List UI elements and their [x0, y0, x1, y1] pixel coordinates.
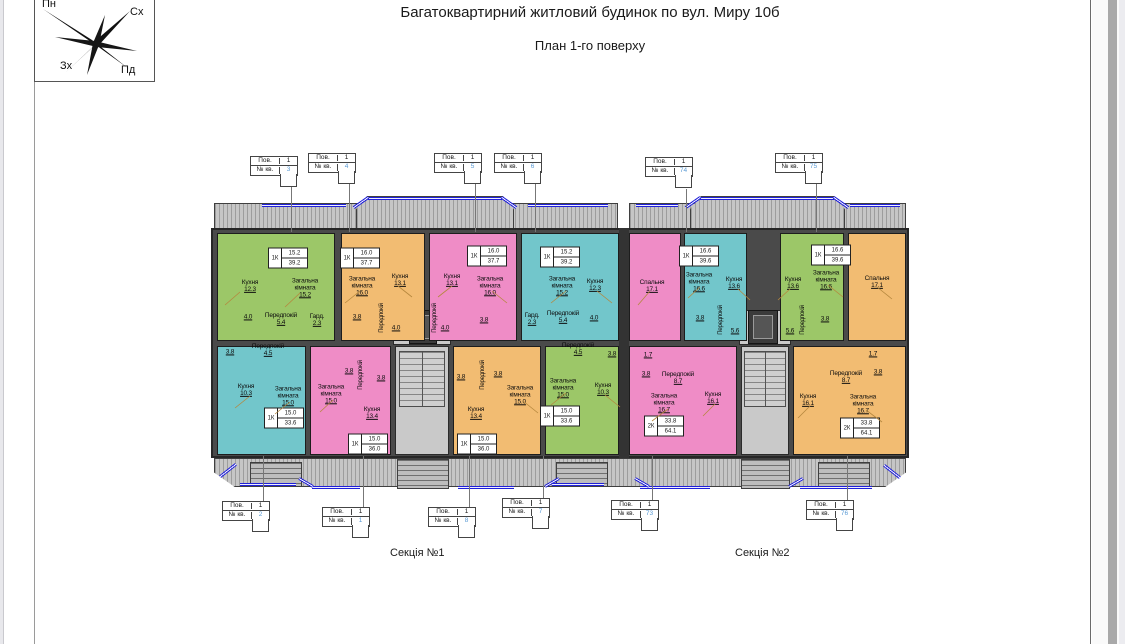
room-label: Кухня16.1 [800, 393, 816, 407]
compass-west-label: Зх [60, 60, 73, 72]
tag-connector [291, 186, 292, 232]
apartment-5-type-box: 1К16.037.7 [467, 246, 507, 267]
tag-connector [686, 189, 687, 232]
room-label: Передпокій [432, 303, 438, 333]
apartment-tag-74: Пов.1 № кв.74 [645, 157, 693, 177]
room-label: 1.7 [644, 351, 652, 358]
apartment-7-type-box: 1К15.033.6 [540, 406, 580, 427]
tag-connector [475, 183, 476, 232]
room-label: Передпокій4.5 [562, 342, 594, 356]
tag-connector [349, 183, 350, 232]
room-label: Передпокій8.7 [830, 370, 862, 384]
room-label: Кухня13.1 [444, 273, 460, 287]
room-label: 3.8 [457, 373, 465, 380]
apartment-tag-1: Пов.1 № кв.1 [322, 507, 370, 527]
room-label: Загальна кімната16.0 [349, 275, 375, 296]
apartment-tag-75: Пов.1 № кв.75 [775, 153, 823, 173]
room-label: Загальна кімната16.7 [850, 393, 876, 414]
window-line [636, 204, 678, 207]
room-label: Передпокій4.5 [252, 343, 284, 357]
room-label: Кухня16.1 [705, 391, 721, 405]
compass-north-label: Пн [42, 0, 56, 10]
floor-plan-sheet: Багатоквартирний житловий будинок по вул… [0, 0, 1125, 644]
room-label: Кухня13.6 [785, 276, 801, 290]
room-label: Загальна кімната16.0 [477, 275, 503, 296]
window-line [850, 204, 900, 207]
room-label: Кухня13.4 [468, 406, 484, 420]
top-bay-section1 [356, 196, 514, 229]
apartment-74-type-box: 1К16.639.6 [679, 246, 719, 267]
room-label: 3.8 [696, 314, 704, 321]
section-party-wall [619, 228, 629, 458]
apartment-7-region [545, 346, 619, 455]
window-line [800, 486, 872, 489]
apartment-6-type-box: 1К15.239.2 [540, 247, 580, 268]
room-label: 5.6 [731, 327, 739, 334]
apartment-tag-4: Пов.1 № кв.4 [308, 153, 356, 173]
sheet-border-right [1090, 0, 1091, 644]
room-label: Передпокій5.4 [547, 310, 579, 324]
room-label: 3.8 [226, 348, 234, 355]
room-label: Передпокій [358, 360, 364, 390]
room-label: 4.0 [392, 324, 400, 331]
room-label: Передпокій [480, 360, 486, 390]
room-label: Кухня12.3 [587, 278, 603, 292]
room-label: Загальна кімната15.0 [507, 384, 533, 405]
room-label: Передпокій [800, 305, 806, 335]
room-label: Загальна кімната15.2 [549, 275, 575, 296]
room-label: 3.8 [494, 370, 502, 377]
apartment-73-type-box: 2К33.864.1 [644, 416, 684, 437]
room-label: 4.0 [244, 313, 252, 320]
apartment-tag-5: Пов.1 № кв.5 [434, 153, 482, 173]
room-label: Передпокій5.4 [265, 312, 297, 326]
apartment-2-type-box: 1К15.033.6 [264, 408, 304, 429]
room-label: Кухня12.3 [242, 279, 258, 293]
window-line [700, 197, 834, 200]
room-label: Загальна кімната15.0 [275, 385, 301, 406]
entrance-steps [397, 459, 449, 489]
window-line [640, 486, 710, 489]
room-label: 4.0 [441, 324, 449, 331]
window-line [528, 204, 608, 207]
elevator-section2 [748, 310, 778, 344]
window-line [458, 486, 514, 489]
entrance-steps [741, 459, 790, 489]
apartment-tag-7: Пов.1 № кв.7 [502, 498, 550, 518]
room-label: 3.8 [874, 368, 882, 375]
apartment-tag-76: Пов.1 № кв.76 [806, 500, 854, 520]
page-right-edge [1119, 0, 1125, 644]
section2-label: Секція №2 [735, 547, 790, 559]
room-label: Гард.2.3 [525, 312, 540, 326]
staircase-section1-icon [399, 351, 445, 407]
compass-south-label: Пд [121, 64, 136, 76]
room-label: Кухня10.3 [595, 382, 611, 396]
room-label: Спальня17.1 [865, 275, 890, 289]
window-line [552, 483, 604, 486]
compass-rose: Пн Сх Зх Пд [34, 0, 155, 82]
section1-label: Секція №1 [390, 547, 445, 559]
tag-connector [816, 184, 817, 232]
room-label: 4.0 [590, 314, 598, 321]
page-title: Багатоквартирний житловий будинок по вул… [90, 4, 1090, 21]
room-label: Загальна кімната15.0 [318, 383, 344, 404]
room-label: Кухня13.1 [392, 273, 408, 287]
apartment-4-type-box: 1К16.037.7 [340, 248, 380, 269]
apartment-1-type-box: 1К15.036.0 [348, 434, 388, 455]
room-label: 3.8 [377, 374, 385, 381]
top-bay-section2 [690, 196, 845, 229]
sheet-border-left [34, 0, 35, 644]
room-label: Передпокій8.7 [662, 371, 694, 385]
window-line [262, 204, 346, 207]
room-label: 3.8 [821, 315, 829, 322]
page-subtitle: План 1-го поверху [90, 38, 1090, 53]
room-label: Загальна кімната16.6 [686, 271, 712, 292]
entrance-steps [818, 462, 870, 487]
room-label: 1.7 [869, 350, 877, 357]
tag-connector [535, 183, 536, 232]
compass-star-icon: Пн Сх Зх Пд [35, 0, 156, 83]
room-label: Передпокій [718, 305, 724, 335]
staircase-section2-icon [744, 351, 786, 407]
apartment-tag-8: Пов.1 № кв.8 [428, 507, 476, 527]
apartment-8-type-box: 1К15.036.0 [457, 434, 497, 455]
room-label: Загальна кімната16.7 [651, 392, 677, 413]
window-line [368, 197, 502, 200]
room-label: 3.8 [608, 350, 616, 357]
room-label: Спальня17.1 [640, 279, 665, 293]
room-label: 3.8 [345, 367, 353, 374]
room-label: Передпокій [379, 303, 385, 333]
room-label: 5.6 [786, 327, 794, 334]
room-label: Загальна кімната15.0 [550, 377, 576, 398]
apartment-75-type-box: 1К16.639.6 [811, 245, 851, 266]
room-label: Кухня13.4 [364, 406, 380, 420]
scrollbar-thumb[interactable] [1108, 0, 1117, 644]
room-label: Гард.2.3 [310, 313, 325, 327]
room-label: Кухня13.6 [726, 276, 742, 290]
apartment-3-type-box: 1К15.239.2 [268, 248, 308, 269]
apartment-tag-3: Пов.1 № кв.3 [250, 156, 298, 176]
apartment-tag-73: Пов.1 № кв.73 [611, 500, 659, 520]
apartment-tag-6: Пов.1 № кв.6 [494, 153, 542, 173]
apartment-76-type-box: 2К33.864.1 [840, 418, 880, 439]
room-label: 3.8 [353, 313, 361, 320]
apartment-tag-2: Пов.1 № кв.2 [222, 501, 270, 521]
room-label: Загальна кімната15.2 [292, 277, 318, 298]
window-line [312, 486, 360, 489]
compass-east-label: Сх [130, 6, 144, 18]
room-label: 3.8 [642, 370, 650, 377]
room-label: Загальна кімната16.6 [813, 269, 839, 290]
window-line [240, 483, 296, 486]
room-label: 3.8 [480, 316, 488, 323]
page-left-edge [0, 0, 4, 644]
room-label: Кухня10.3 [238, 383, 254, 397]
